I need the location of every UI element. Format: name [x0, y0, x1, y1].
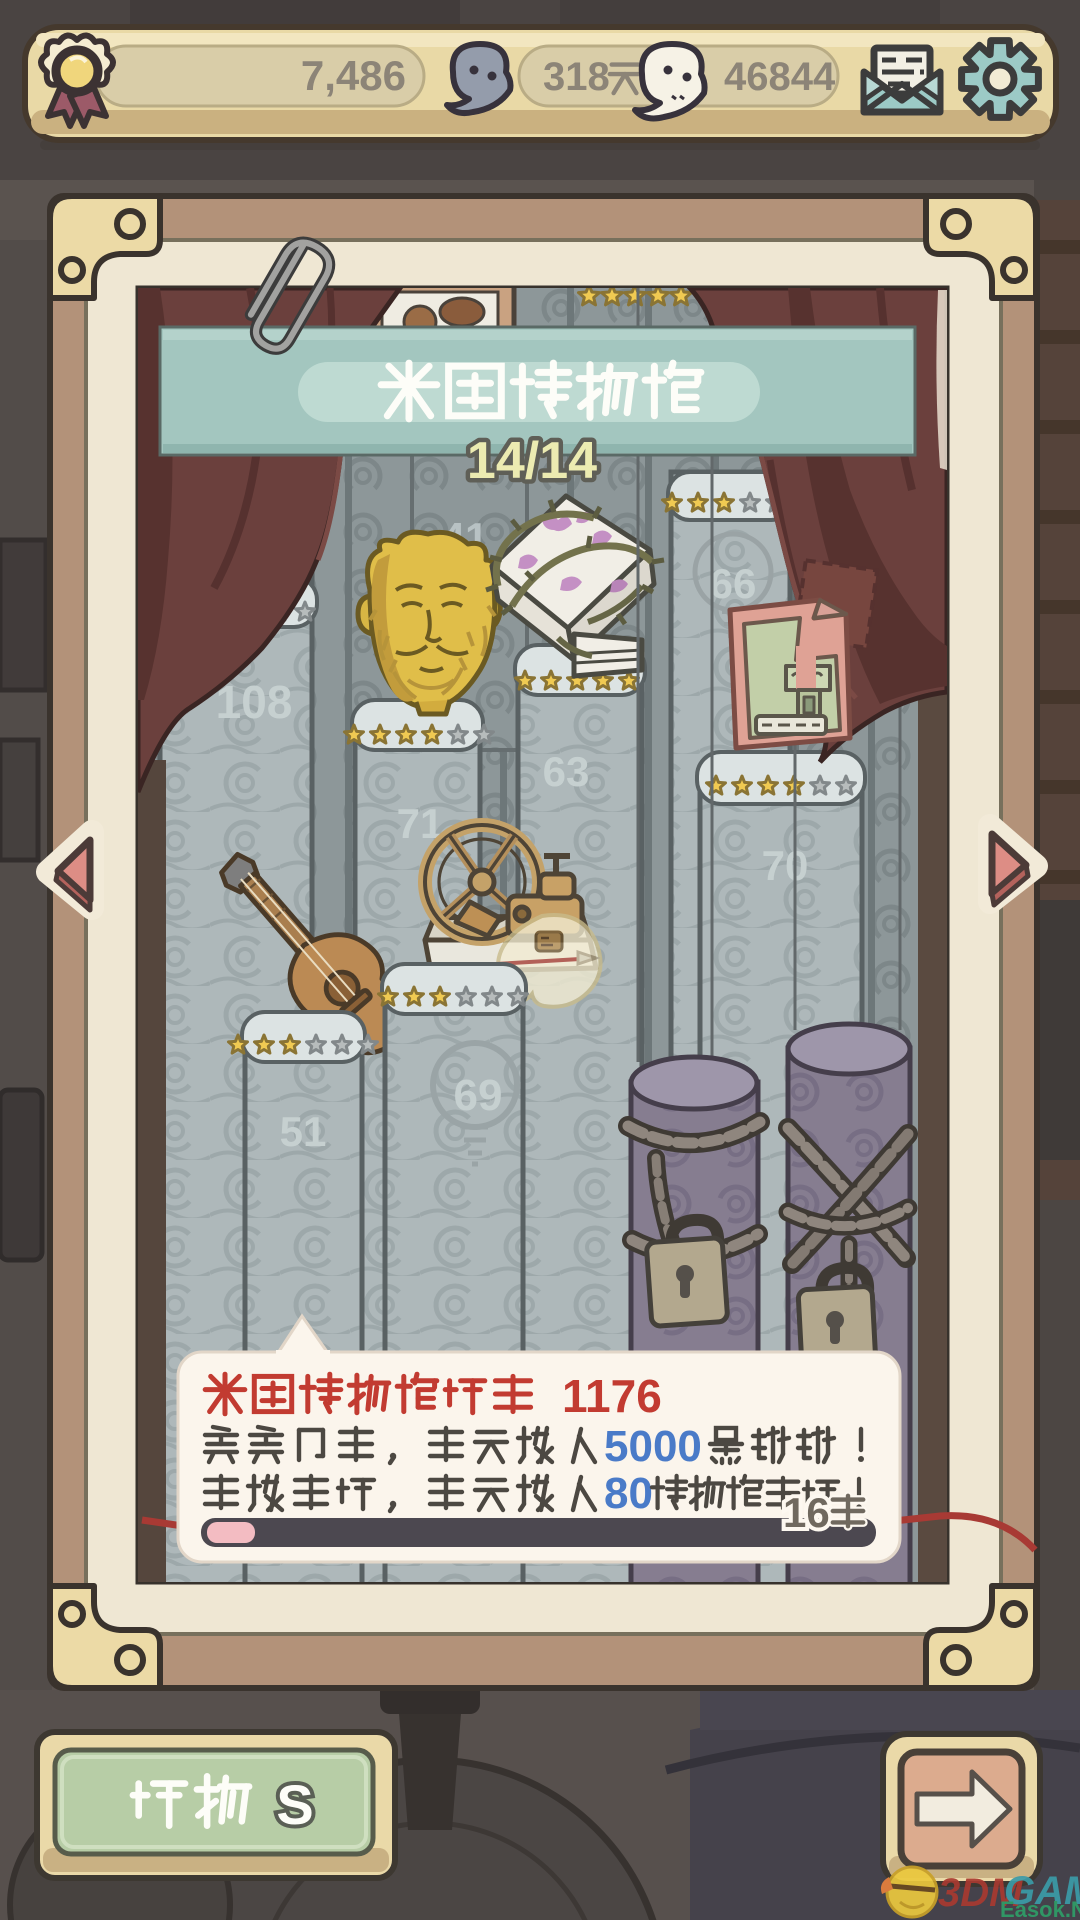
svg-text:Easok.Net: Easok.Net — [1000, 1897, 1080, 1920]
svg-text:66: 66 — [710, 560, 757, 607]
svg-text:14/14: 14/14 — [467, 432, 597, 490]
svg-text:7,486: 7,486 — [301, 52, 406, 99]
svg-text:46844: 46844 — [724, 55, 836, 99]
svg-text:69: 69 — [454, 1071, 503, 1120]
svg-text:S: S — [276, 1773, 313, 1836]
svg-text:63: 63 — [543, 748, 590, 795]
svg-text:70: 70 — [762, 842, 809, 889]
svg-text:318: 318 — [543, 55, 610, 99]
svg-text:1176: 1176 — [562, 1370, 662, 1422]
svg-text:5000: 5000 — [604, 1422, 702, 1471]
svg-text:16: 16 — [783, 1489, 830, 1536]
svg-text:80: 80 — [604, 1469, 653, 1518]
svg-text:51: 51 — [280, 1108, 327, 1155]
